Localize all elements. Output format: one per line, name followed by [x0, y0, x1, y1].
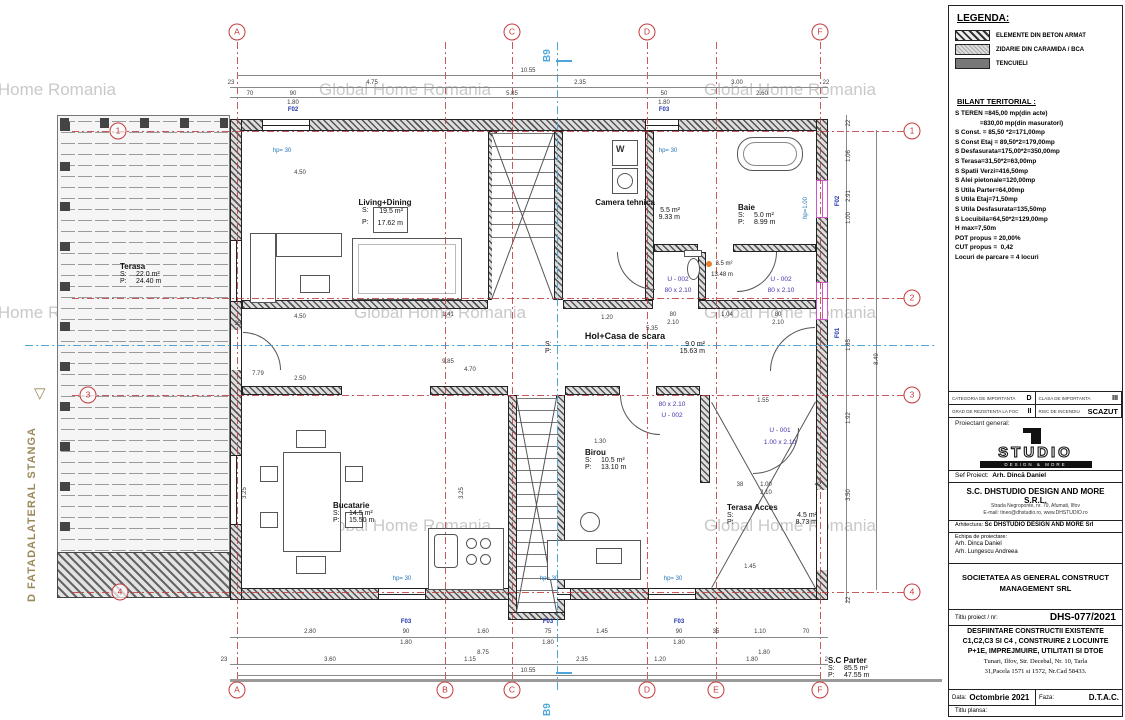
bilant-lines: S TEREN =845,00 mp(din acte) =830,00 mp(… — [955, 109, 1116, 263]
axis-bubble: B — [437, 682, 454, 699]
room-label-living: Living+Dining S:P: 19.5 m²17.62 m — [330, 198, 440, 233]
bilant-line: S Utila Desfasurata=135,50mp — [955, 205, 1116, 215]
architect-name: Arh. Dinca Daniel — [955, 540, 1116, 548]
axis-bubble: 4 — [904, 584, 921, 601]
bilant-line: S Locuibila=64,50*2=129,00mp — [955, 215, 1116, 225]
data-cell: Data:Octombrie 2021 — [949, 690, 1035, 705]
address-line: E-mail: tineo@dhstudio.ro, www.DHSTUDIO.… — [955, 510, 1116, 517]
importance-cell: CATEGORIA DE IMPORTANTAD — [949, 392, 1036, 405]
title-block-panel: LEGENDA: ELEMENTE DIN BETON ARMAT ZIDARI… — [948, 5, 1123, 717]
legend-title: LEGENDA: — [957, 13, 1116, 24]
room-label-terasa: Terasa S:22.0 m² P:24.40 m — [120, 262, 161, 285]
logo-word: STUDIO — [955, 444, 1116, 461]
bilant-line: POT propus = 20,00% — [955, 234, 1116, 244]
axis-bubble: C — [504, 24, 521, 41]
project-title-line: C1,C2,C3 SI C4 , CONSTRUIRE 2 LOCUINTE — [955, 637, 1116, 647]
axis-bubble: 2 — [904, 290, 921, 307]
importance-cell: RISC DE INCENDIUSCAZUT — [1036, 405, 1123, 418]
importance-cell: GRAD DE REZISTENTA LA FOCII — [949, 405, 1036, 418]
room-label-bucatarie: Bucatarie S:14.5 m² P:15.50 m — [333, 501, 374, 524]
bilant-line: S Utila Parter=64,00mp — [955, 186, 1116, 196]
studio-logo: STUDIO DESIGN & MORE — [955, 428, 1116, 468]
floor-plan-area: Global Home RomaniaGlobal Home RomaniaGl… — [0, 0, 948, 720]
project-location-line: 31,Pacela 1571 si 1572, Nr.Cad 58433. — [955, 667, 1116, 677]
importance-table: CATEGORIA DE IMPORTANTAD CLASA DE IMPORT… — [949, 391, 1122, 418]
echipa-names: Arh. Dinca DanielArh. Lungescu Andreea — [955, 540, 1116, 556]
axis-bubble: D — [639, 24, 656, 41]
axis-bubble: 3 — [904, 387, 921, 404]
room-label-hol: Hol+Casa de scara S:9.0 m² P:15.63 m — [545, 331, 705, 355]
bilant-line: H max=7,50m — [955, 224, 1116, 234]
axis-bubble: 3 — [80, 387, 97, 404]
room-label-birou: Birou S:10.5 m² P:13.10 m — [585, 448, 626, 471]
project-number: DHS-077/2021 — [1050, 612, 1116, 623]
bilant-line: S Const. = 85,50 *2=171,00mp — [955, 128, 1116, 138]
firm-row: S.C. DHSTUDIO DESIGN AND MORE S.R.L. — [949, 482, 1122, 500]
facade-direction-icon: ▽ — [34, 384, 46, 402]
bilant-title: BILANT TERITORIAL : — [957, 97, 1116, 106]
project-title-lines: DESFIINTARE CONSTRUCTII EXISTENTEC1,C2,C… — [955, 627, 1116, 657]
legend-item: ZIDARIE DIN CARAMIDA / BCA — [955, 44, 1116, 55]
bilant-line: S Const Etaj = 89,50*2=179,00mp — [955, 138, 1116, 148]
bilant-section: BILANT TERITORIAL : S TEREN =845,00 mp(d… — [949, 94, 1122, 264]
architect-name: Arh. Lungescu Andreea — [955, 548, 1116, 556]
proiectant-section: Proiectant general: STUDIO DESIGN & MORE — [949, 419, 1122, 469]
axis-bubble: F — [812, 24, 829, 41]
logo-mark — [1031, 428, 1041, 444]
proiectant-label: Proiectant general: — [955, 420, 1116, 427]
titlu-proiect-row: Titlu proiect / nr: DHS-077/2021 — [949, 609, 1122, 625]
axis-bubble: A — [229, 682, 246, 699]
project-location-line: Tunari, Ilfov, Str. Decebal, Nr. 10, Tar… — [955, 657, 1116, 667]
axis-bubble: C — [504, 682, 521, 699]
axis-bubble: E — [708, 682, 725, 699]
bilant-line: S Utila Etaj=71,50mp — [955, 195, 1116, 205]
bilant-line: S TEREN =845,00 mp(din acte) — [955, 109, 1116, 119]
bilant-line: =830,00 mp(din masuratori) — [955, 119, 1116, 129]
echipa-section: Echipa de proiectare: Arh. Dinca DanielA… — [949, 532, 1122, 563]
masonry-hatch-swatch — [955, 44, 990, 55]
faza-cell: Faza:D.T.A.C. — [1035, 690, 1122, 705]
drawing-sheet: Global Home RomaniaGlobal Home RomaniaGl… — [0, 0, 1125, 720]
project-location-lines: Tunari, Ilfov, Str. Decebal, Nr. 10, Tar… — [955, 657, 1116, 677]
sef-proiect-row: Sef Proiect: Arh. Dincă Daniel — [949, 470, 1122, 482]
axis-bubble-layer: ACDFABCDEF1234134 — [0, 0, 948, 720]
legend-section: LEGENDA: ELEMENTE DIN BETON ARMAT ZIDARI… — [949, 8, 1122, 73]
room-label-camera-tehnica: Camera tehnica 5.5 m² 9.33 m — [570, 198, 680, 221]
project-title-line: P+1E, IMPREJMUIRE, UTILITATI SI DTOE — [955, 647, 1116, 657]
room-label-baie: Baie S:5.0 m² P:8.99 m — [738, 203, 775, 226]
bilant-line: Locuri de parcare = 4 locuri — [955, 253, 1116, 263]
axis-bubble: D — [639, 682, 656, 699]
importance-cell: CLASA DE IMPORTANTAIII — [1036, 392, 1123, 405]
titlu-plansa-row: Titlu plansa: — [949, 705, 1122, 718]
beneficiar-row: SOCIETATEA AS GENERAL CONSTRUCT MANAGEME… — [949, 563, 1122, 609]
axis-bubble: 1 — [110, 123, 127, 140]
address-block: Strada Negroponte, nr. 79, Afumati, Ilfo… — [949, 500, 1122, 520]
axis-bubble: 1 — [904, 123, 921, 140]
legend-item: ELEMENTE DIN BETON ARMAT — [955, 30, 1116, 41]
project-description: DESFIINTARE CONSTRUCTII EXISTENTEC1,C2,C… — [949, 625, 1122, 689]
parter-summary: S.C Parter S:85.5 m² P:47.55 m — [828, 656, 869, 679]
bilant-line: CUT propus = 0,42 — [955, 243, 1116, 253]
plaster-swatch — [955, 58, 990, 69]
address-line: Strada Negroponte, nr. 79, Afumati, Ilfo… — [955, 503, 1116, 510]
bilant-line: S Alei pietonale=120,00mp — [955, 176, 1116, 186]
axis-bubble: 4 — [112, 584, 129, 601]
axis-bubble: A — [229, 24, 246, 41]
room-label-terasa-acces: Terasa Acces S:4.5 m² P:8.73 m — [727, 503, 817, 526]
axis-bubble: F — [812, 682, 829, 699]
bilant-line: S Spatii Verzi=416,50mp — [955, 167, 1116, 177]
concrete-hatch-swatch — [955, 30, 990, 41]
legend-item: TENCUIELI — [955, 58, 1116, 69]
facade-label: D FATADALATERAL STANGA — [26, 427, 38, 602]
logo-band: DESIGN & MORE — [980, 461, 1092, 468]
data-faza-row: Data:Octombrie 2021 Faza:D.T.A.C. — [949, 689, 1122, 705]
project-title-line: DESFIINTARE CONSTRUCTII EXISTENTE — [955, 627, 1116, 637]
arhitectura-row: Arhitectura: Sc DHSTUDIO DESIGN AND MORE… — [949, 520, 1122, 532]
bilant-line: S Desfasurata=175,00*2=350,00mp — [955, 147, 1116, 157]
bilant-line: S Terasa=31,50*2=63,00mp — [955, 157, 1116, 167]
